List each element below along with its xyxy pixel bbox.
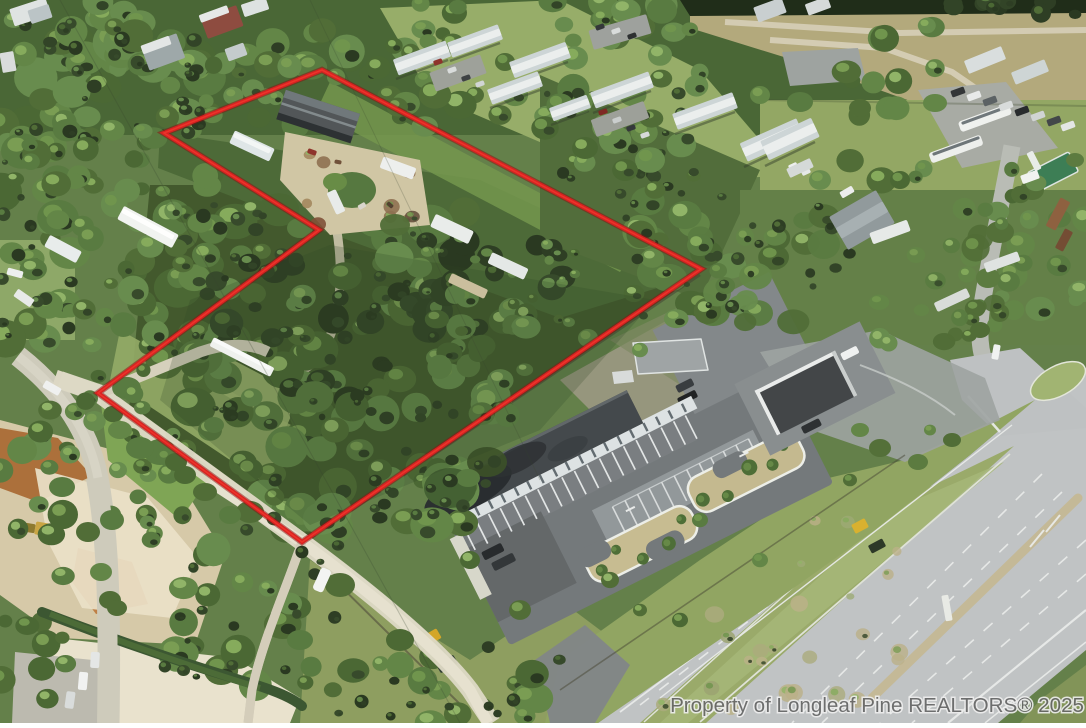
svg-text:Property of Longleaf Pine REAL: Property of Longleaf Pine REALTORS® 2025 — [670, 694, 1084, 717]
